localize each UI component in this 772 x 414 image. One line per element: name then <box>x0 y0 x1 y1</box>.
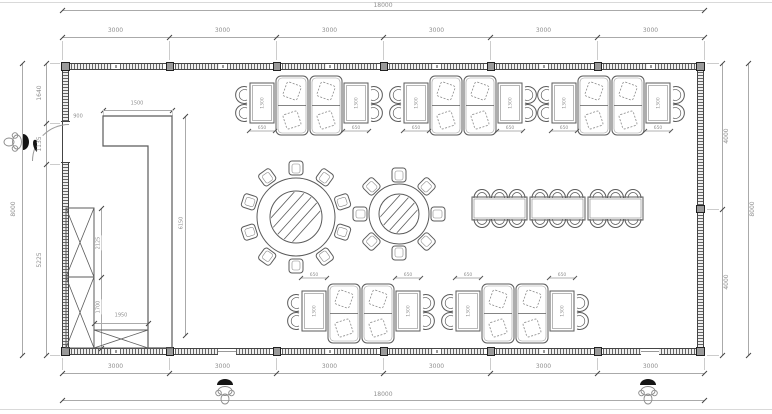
chair-icon <box>525 104 536 121</box>
furniture: 1300130065065013001300650650130013006506… <box>66 76 684 348</box>
chair-inner <box>239 108 247 119</box>
booth-cluster: 13001300650650 <box>288 272 435 343</box>
dim-table-width: 650 <box>506 125 515 131</box>
chair-icon <box>417 232 437 252</box>
chair-inner <box>371 108 379 119</box>
furniture-layer: 1300130065065013001300650650130013006506… <box>0 0 772 414</box>
hat-icon <box>217 379 233 385</box>
person-figure <box>4 133 29 152</box>
table-inner <box>474 199 525 218</box>
dim-table-length: 1300 <box>406 305 412 317</box>
cushion-icon <box>316 81 335 100</box>
chair-icon <box>673 87 684 104</box>
chair-icon <box>362 232 382 252</box>
chair-inner <box>291 298 299 309</box>
dim-table-length: 1300 <box>312 305 318 317</box>
chair-icon <box>236 105 247 122</box>
cushion-icon <box>585 111 604 130</box>
cabinet <box>66 277 94 348</box>
person-figure <box>639 379 658 404</box>
chair-inner <box>445 298 453 309</box>
glass-hatch <box>377 191 421 236</box>
chair-icon <box>392 168 406 182</box>
cushion-icon <box>437 111 456 130</box>
dim-table-width: 650 <box>412 125 421 131</box>
chair-icon <box>288 313 299 330</box>
dim-label: 4000 <box>724 127 730 144</box>
chair-inner <box>423 298 431 309</box>
dim-table-length: 1300 <box>260 97 266 109</box>
cushion-icon <box>489 319 508 338</box>
table <box>472 197 527 220</box>
chair-icon <box>525 86 536 103</box>
table-top <box>257 178 335 256</box>
chair-inner <box>525 108 533 119</box>
dim-cabinet-lower: 1700 <box>97 300 102 315</box>
table <box>530 197 585 220</box>
dim-total-right: 8000 <box>750 200 756 217</box>
glass-hatch <box>265 186 324 246</box>
dim-total-top: 18000 <box>372 3 393 9</box>
cushion-icon <box>584 81 603 100</box>
dim-label: 3000 <box>535 28 552 34</box>
dim-label: 3000 <box>428 28 445 34</box>
cushion-icon <box>334 289 353 308</box>
person-figure <box>216 379 235 404</box>
booth-cluster: 13001300650650 <box>390 76 537 135</box>
table-inner <box>532 199 583 218</box>
booth-cluster: 13001300650650 <box>236 76 383 135</box>
dim-table-width: 650 <box>404 272 413 278</box>
chair-icon <box>673 105 684 122</box>
table-inner <box>590 199 641 218</box>
dim-cabinet-upper: 2125 <box>97 236 102 251</box>
dim-total-left: 8000 <box>11 200 17 217</box>
chair-inner <box>525 90 533 101</box>
chair-inner <box>577 298 585 309</box>
chair-icon <box>577 295 588 312</box>
dim-table-width: 650 <box>258 125 267 131</box>
dim-table-length: 1300 <box>508 97 514 109</box>
dim-label: 3000 <box>107 28 124 34</box>
chair-icon <box>431 207 445 221</box>
cushion-icon <box>619 111 638 130</box>
chair-icon <box>236 87 247 104</box>
chair-icon <box>334 223 352 241</box>
chair-icon <box>417 177 437 197</box>
table-top <box>369 184 429 244</box>
cushion-icon <box>470 81 489 100</box>
cushion-icon <box>283 111 302 130</box>
chair-inner <box>423 316 431 327</box>
chair-icon <box>538 87 549 104</box>
dim-label: 4000 <box>724 273 730 290</box>
cushion-icon <box>368 289 387 308</box>
dim-door-width: 900 <box>72 115 84 120</box>
dim-cabinet-bottom: 1950 <box>114 314 129 319</box>
dim-table-width: 650 <box>352 125 361 131</box>
chair-inner <box>541 90 549 101</box>
long-table <box>588 190 643 228</box>
chair-icon <box>538 105 549 122</box>
chair-icon <box>442 313 453 330</box>
dim-table-length: 1300 <box>562 97 568 109</box>
lazy-susan <box>379 194 419 234</box>
dim-label: 3000 <box>321 364 338 370</box>
chair-icon <box>423 295 434 312</box>
cushion-icon <box>317 111 336 130</box>
dim-label: 5225 <box>37 251 43 268</box>
chair-icon <box>241 223 259 241</box>
dim-label: 3000 <box>321 28 338 34</box>
chair-icon <box>289 259 303 273</box>
hat-icon <box>640 379 656 385</box>
chair-inner <box>393 90 401 101</box>
chair-inner <box>673 90 681 101</box>
chair-inner <box>371 90 379 101</box>
chair-inner <box>541 108 549 119</box>
long-table <box>530 190 585 228</box>
dim-label: 3000 <box>428 364 445 370</box>
chair-icon <box>442 295 453 312</box>
chair-icon <box>241 193 259 211</box>
lazy-susan <box>270 191 322 243</box>
dim-counter-length: 6150 <box>180 216 185 231</box>
dim-label: 3000 <box>214 28 231 34</box>
dim-label: 3000 <box>107 364 124 370</box>
cushion-icon <box>618 81 637 100</box>
chair-inner <box>577 316 585 327</box>
cushion-icon <box>471 111 490 130</box>
booth-cluster: 13001300650650 <box>538 76 685 135</box>
cushion-icon <box>335 319 354 338</box>
cabinet <box>94 330 148 348</box>
dim-table-length: 1300 <box>414 97 420 109</box>
dim-table-length: 1300 <box>466 305 472 317</box>
cushion-icon <box>523 319 542 338</box>
chair-icon <box>288 295 299 312</box>
chair-inner <box>291 315 299 326</box>
dim-table-length: 1300 <box>560 305 566 317</box>
long-table <box>472 190 527 228</box>
chair-inner <box>393 108 401 119</box>
chair-icon <box>390 86 401 103</box>
floor-plan-sheet: 1300130065065013001300650650130013006506… <box>0 0 772 414</box>
round-table <box>241 161 352 273</box>
chair-icon <box>371 86 382 103</box>
chair-icon <box>577 313 588 330</box>
dim-total-bottom: 18000 <box>372 392 393 398</box>
dim-table-width: 650 <box>558 272 567 278</box>
chair-icon <box>334 193 352 211</box>
chair-icon <box>289 161 303 175</box>
dim-table-width: 650 <box>560 125 569 131</box>
dim-table-length: 1300 <box>354 97 360 109</box>
chair-icon <box>353 207 367 221</box>
dim-label: 3000 <box>214 364 231 370</box>
chair-inner <box>673 108 681 119</box>
dim-label: 1135 <box>37 135 43 152</box>
chair-icon <box>362 177 382 197</box>
dim-table-length: 1300 <box>656 97 662 109</box>
chair-icon <box>371 104 382 121</box>
dim-counter-width: 1500 <box>130 102 145 107</box>
cushion-icon <box>436 81 455 100</box>
cushion-icon <box>522 289 541 308</box>
dim-label: 1640 <box>37 84 43 101</box>
dim-table-width: 650 <box>654 125 663 131</box>
booth-cluster: 13001300650650 <box>442 272 589 343</box>
cushion-icon <box>282 81 301 100</box>
dim-table-width: 650 <box>310 272 319 278</box>
cushion-icon <box>488 289 507 308</box>
chair-icon <box>392 246 406 260</box>
chair-inner <box>239 90 247 101</box>
dim-label: 3000 <box>535 364 552 370</box>
chair-icon <box>423 313 434 330</box>
cushion-icon <box>369 319 388 338</box>
cabinet <box>66 208 94 277</box>
round-table <box>353 168 445 260</box>
table <box>588 197 643 220</box>
dim-label: 3000 <box>642 28 659 34</box>
chair-inner <box>445 316 453 327</box>
chair-icon <box>390 104 401 121</box>
hat-icon <box>23 134 29 150</box>
dim-table-width: 650 <box>464 272 473 278</box>
dim-label: 3000 <box>642 364 659 370</box>
